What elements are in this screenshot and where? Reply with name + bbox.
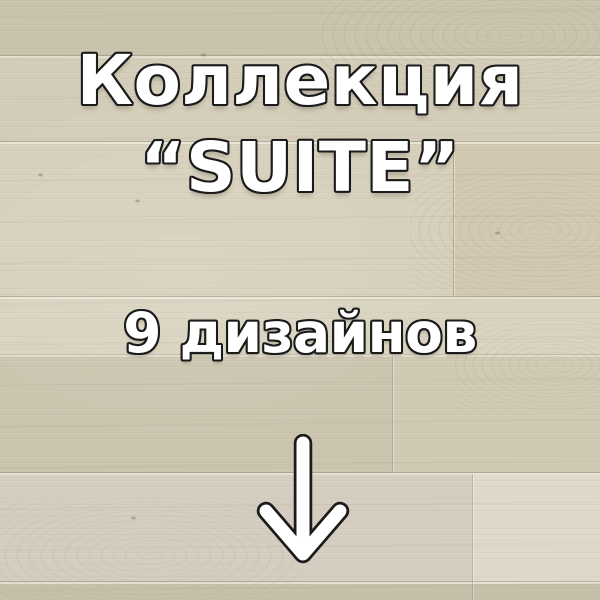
title-line-2: “SUITE”: [0, 125, 600, 212]
down-arrow-icon: [252, 434, 354, 568]
text-overlay: Коллекция “SUITE” 9 дизайнов: [0, 0, 600, 600]
title-line-1: Коллекция: [0, 38, 600, 125]
collection-title: Коллекция “SUITE”: [0, 38, 600, 212]
promo-banner: Коллекция “SUITE” 9 дизайнов: [0, 0, 600, 600]
design-count: 9 дизайнов: [0, 303, 600, 363]
